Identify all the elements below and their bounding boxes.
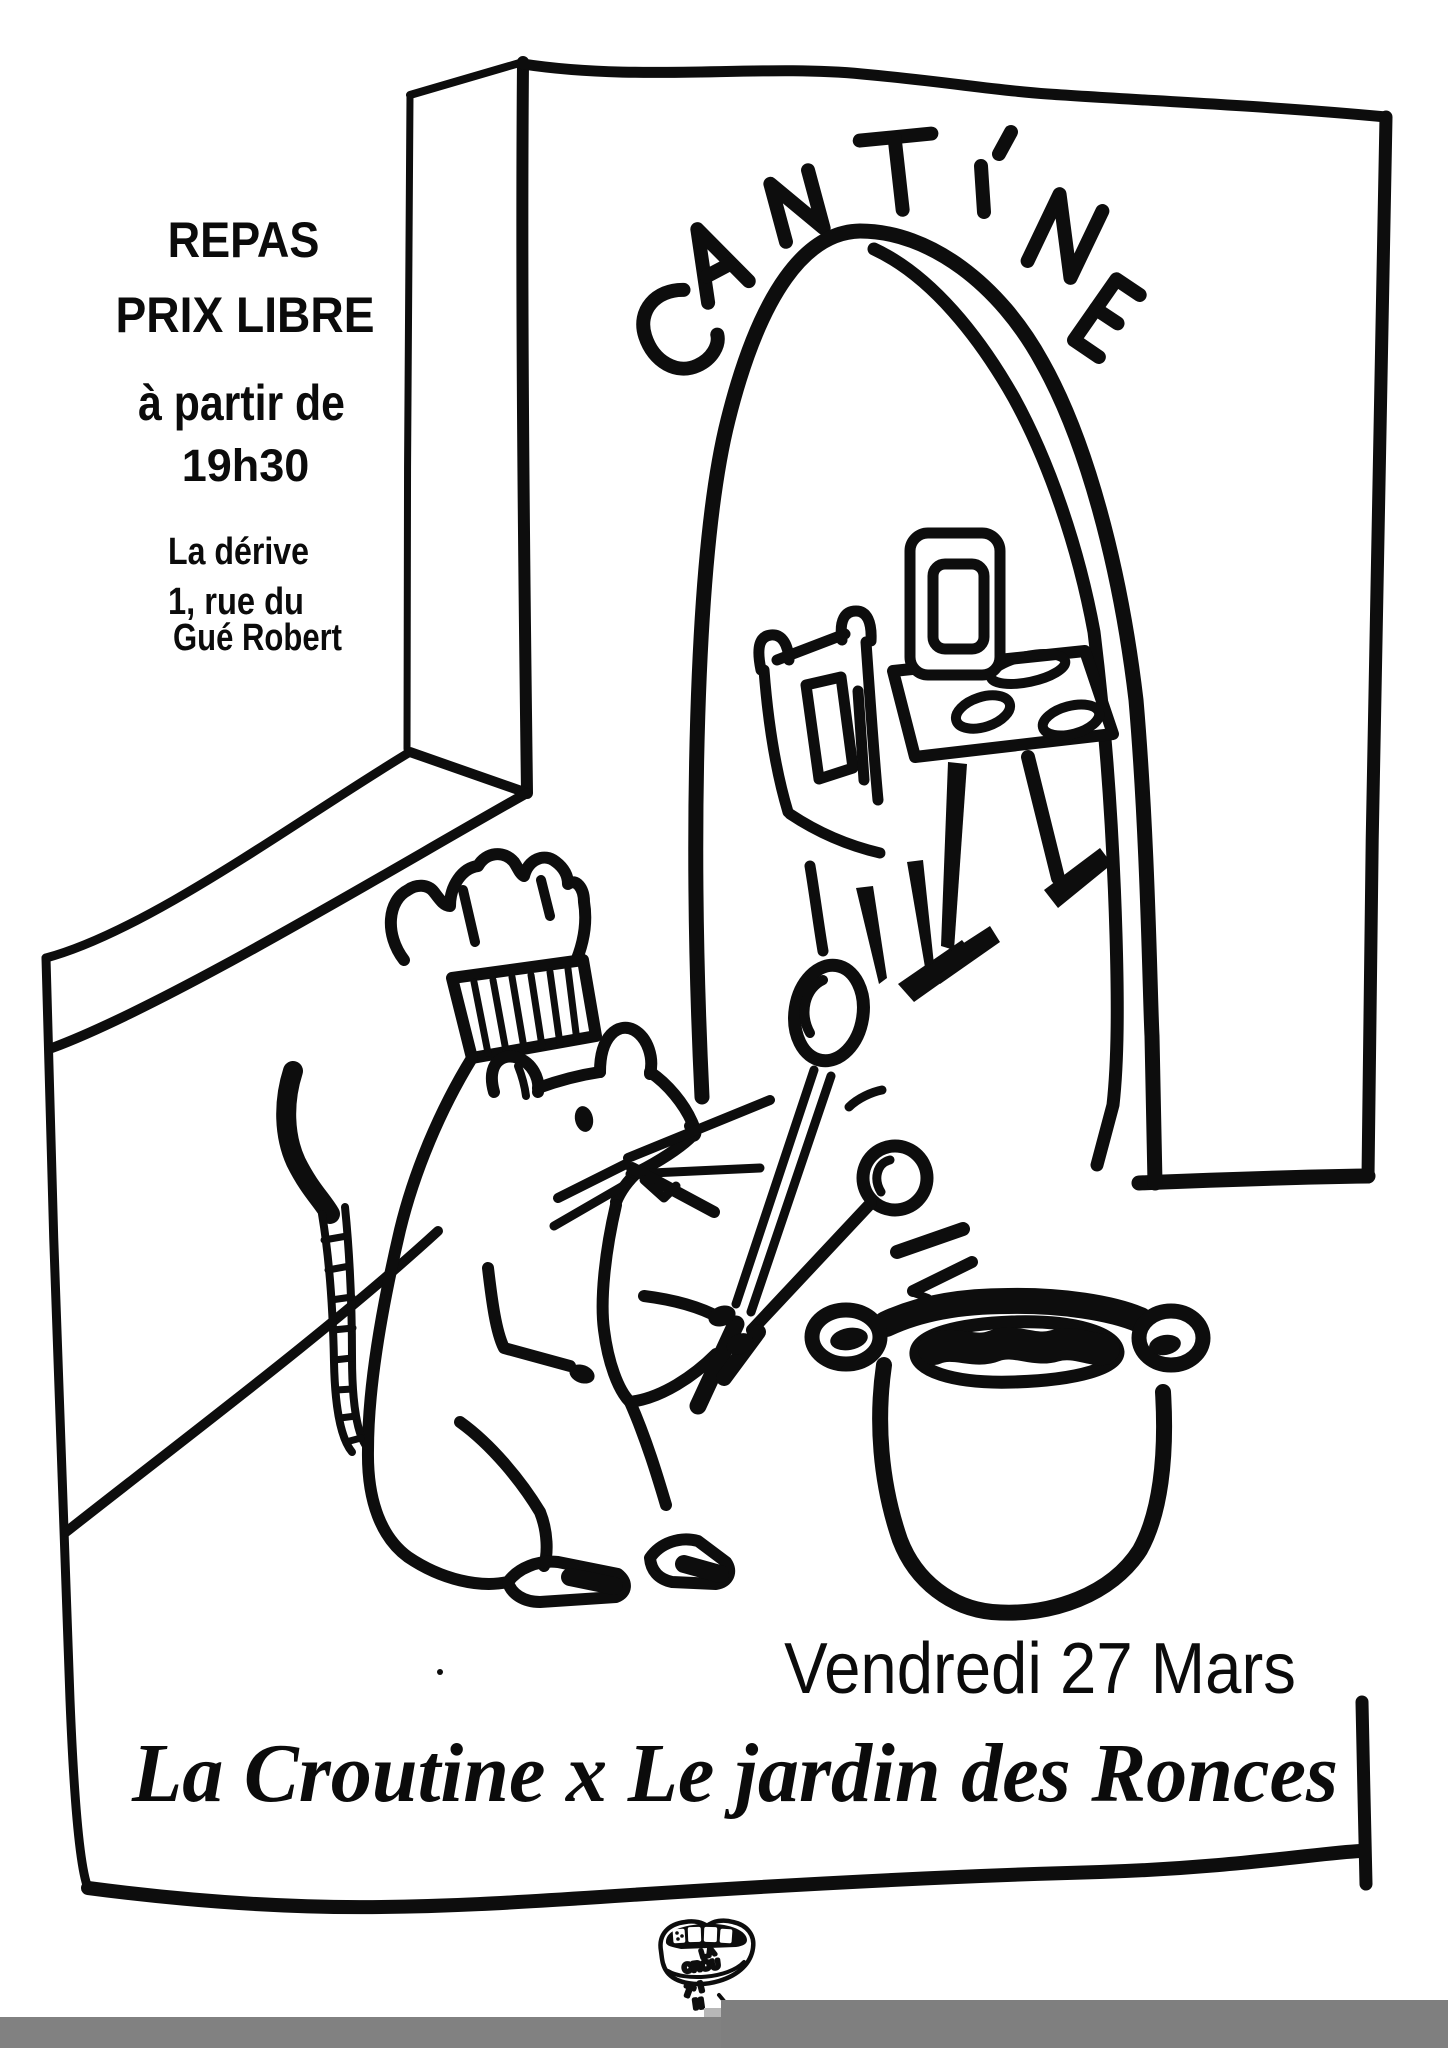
svg-text:PRIX LIBRE: PRIX LIBRE <box>116 287 375 343</box>
svg-text:La dérive: La dérive <box>168 531 309 573</box>
svg-text:REPAS: REPAS <box>168 213 320 269</box>
svg-text:Vendredi 27 Mars: Vendredi 27 Mars <box>784 1628 1296 1709</box>
svg-text:à partir de: à partir de <box>138 375 345 431</box>
svg-text:Gué Robert: Gué Robert <box>173 617 342 659</box>
svg-text:19h30: 19h30 <box>182 440 310 491</box>
svg-text:1, rue du: 1, rue du <box>168 580 304 623</box>
svg-text:La Croutine x Le jardin des Ro: La Croutine x Le jardin des Ronces <box>131 1726 1338 1819</box>
